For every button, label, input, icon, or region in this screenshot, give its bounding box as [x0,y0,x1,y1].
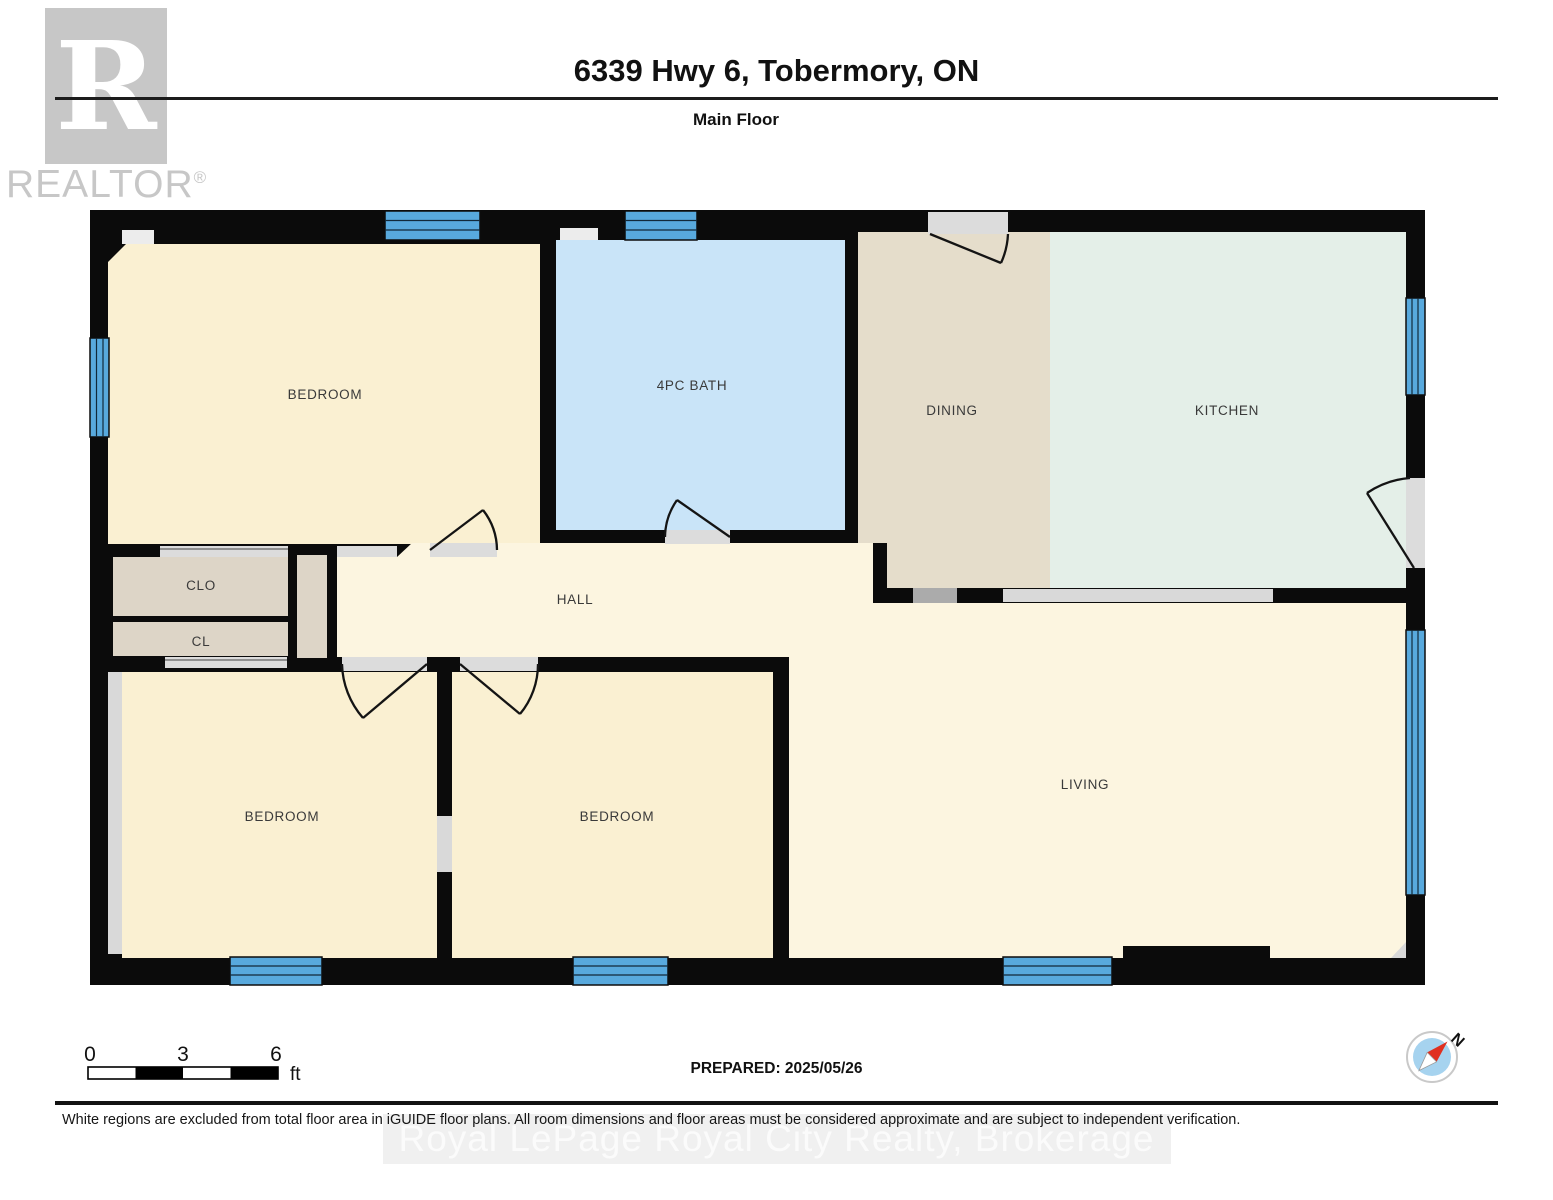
registered-mark: ® [194,168,208,187]
fireplace-bump [1123,946,1270,960]
page-title: 6339 Hwy 6, Tobermory, ON [0,53,1553,89]
door-dining-entry [928,212,1008,234]
window-right-living [1406,630,1425,895]
label-bath: 4PC BATH [657,378,728,393]
label-bedroom-top-left: BEDROOM [288,387,363,402]
title-divider [55,97,1498,100]
label-clo: CLO [186,578,216,593]
page: R REALTOR® 6339 Hwy 6, Tobermory, ON Mai… [0,0,1553,1200]
door-bath [665,530,730,544]
wall-notch-bath [560,228,598,240]
kitchen-counter [1003,589,1273,602]
disclaimer-text: White regions are excluded from total fl… [62,1112,1362,1128]
wall-notch-top-left [122,230,154,244]
footer-divider [55,1101,1498,1105]
door-bedroom-top-left [430,543,497,557]
window-bottom-living [1003,957,1112,985]
window-top-bath [625,211,697,240]
cl-sliding-door [165,657,287,668]
window-bottom-bedroom-middle [573,957,668,985]
label-hall: HALL [557,592,594,607]
label-dining: DINING [926,403,977,418]
label-cl: CL [192,634,211,649]
door-bedroom-bottom-middle [460,657,538,671]
kitchen-appliance [913,588,957,603]
realtor-wordmark: REALTOR® [6,163,207,207]
hall-top-opening [337,546,397,557]
door-bedroom-bottom-left [342,657,427,671]
window-top-bedroom [385,211,480,240]
clo-sliding-door [160,546,288,557]
floor-plan-svg: BEDROOM 4PC BATH DINING KITCHEN CLO CL H… [0,0,1553,1200]
closet-return-wall [297,555,327,658]
label-kitchen: KITCHEN [1195,403,1259,418]
door-kitchen-side [1406,478,1425,568]
bedroom-left-wall-strip [108,672,122,954]
window-left-bedroom [90,338,109,437]
bedroom-divider-gap [437,816,452,872]
prepared-date: PREPARED: 2025/05/26 [0,1060,1553,1078]
label-bedroom-bottom-middle: BEDROOM [580,809,655,824]
window-bottom-bedroom-left [230,957,322,985]
label-bedroom-bottom-left: BEDROOM [245,809,320,824]
label-living: LIVING [1061,777,1109,792]
window-right-kitchen [1406,298,1425,395]
